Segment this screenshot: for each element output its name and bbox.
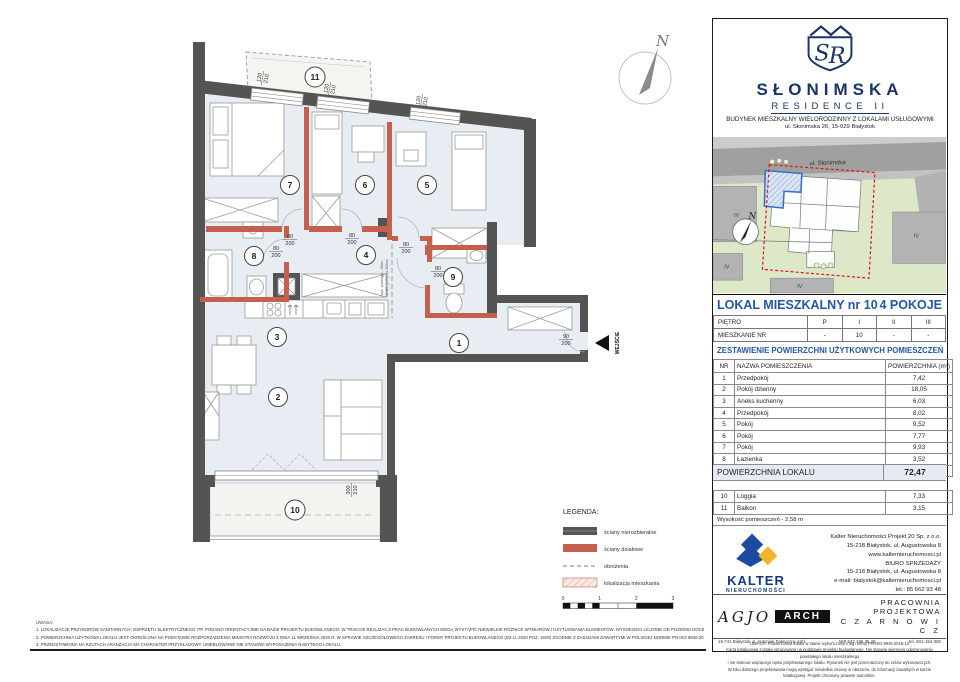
room-label-9: 9 [444,268,463,287]
info-panel: S R SŁONIMSKA RESIDENCE II BUDYNEK MIESZ… [712,18,948,652]
bed-double [210,103,284,176]
svg-text:80: 80 [287,234,293,240]
room-label-6: 6 [356,176,375,195]
svg-text:80: 80 [273,246,279,252]
svg-text:200: 200 [347,240,356,246]
washbasin-icon [467,248,486,263]
table-row: 6Pokój7,77 [714,430,953,442]
ceiling-height-note: Wysokość pomieszczeń - 2,58 m [713,514,946,526]
toilet-icon [444,284,464,313]
site-map: ul. Słonimska IV IV IV IV [713,136,946,295]
extra-table-body: 10Loggia7,3311Balkon3,15 [714,491,953,515]
svg-text:ściany nierozbieralne: ściany nierozbieralne [604,530,657,536]
svg-text:światło przejścia 200cm: światło przejścia 200cm [385,259,389,297]
svg-text:lokalizacja mieszkania: lokalizacja mieszkania [604,581,660,587]
floor-table: PIĘTRO PI IIIII MIESZKANIE NR -10 -- [713,315,946,342]
unit-title: LOKAL MIESZKALNY nr 10 [713,298,878,312]
svg-text:3: 3 [275,332,280,342]
svg-text:80: 80 [349,233,355,239]
floor-label: IV [797,284,803,290]
kitchen-counter [245,300,388,318]
developer-website-link[interactable]: www.kalternieruchomosci.pl [799,551,941,560]
svg-text:7: 7 [288,180,293,190]
svg-text:80: 80 [435,266,441,272]
brand-subname: RESIDENCE II [713,101,947,112]
svg-text:80: 80 [403,242,409,248]
svg-text:200: 200 [433,273,442,279]
room-label-5: 5 [418,176,437,195]
table-row: 4Przedpokój8,02 [714,407,953,419]
floor-label: IV [734,213,740,219]
svg-text:3: 3 [672,596,675,602]
svg-text:200: 200 [561,341,570,347]
svg-text:210: 210 [353,485,359,494]
unit-header: LOKAL MIESZKALNY nr 10 4 POKOJE [713,294,946,316]
agjo-logo: AGJO [718,608,771,626]
beam-note: wys. podciągu - 26cm światło przejścia 2… [380,259,389,297]
entrance-marker: WEJŚCIE [595,331,621,354]
developer-contact: Kalter Nieruchomości Projekt 20 Sp. z o.… [799,529,946,594]
svg-text:N: N [655,32,670,50]
svg-text:300: 300 [346,485,352,494]
table-row: 5Pokój9,52 [714,419,953,431]
table-row: 1Przedpokój7,42 [714,373,953,385]
brand-header: S R SŁONIMSKA RESIDENCE II BUDYNEK MIESZ… [713,19,947,130]
room-label-4: 4 [357,246,376,265]
developer-name: KALTER [713,573,799,588]
svg-text:N: N [748,212,758,222]
room-label-8: 8 [245,247,264,266]
note-item: 1. LOKALIZACJE PRZYBORÓW SANITARNYCH, OS… [36,626,704,633]
plan-legend: LEGENDA: ściany nierozbieralne ściany dz… [563,509,660,587]
room-label-2: 2 [269,388,288,407]
table-row: 10Loggia7,33 [714,491,953,503]
area-table-body: 1Przedpokój7,422Pokój dzienny18,053Aneks… [714,373,953,477]
svg-text:wys. podciągu - 26cm: wys. podciągu - 26cm [380,261,384,296]
table-header-row: NR NAZWA POMIESZCZENIA POWIERZCHNIA (m²) [714,360,953,373]
north-arrow-icon: N [619,32,671,104]
kalter-logo: KALTER NIERUCHOMOŚCI [713,529,799,594]
brand-name: SŁONIMSKA [713,80,947,100]
svg-text:WEJŚCIE: WEJŚCIE [614,331,621,354]
table-row: 7Pokój9,93 [714,442,953,454]
developer-block: KALTER NIERUCHOMOŚCI Kalter Nieruchomośc… [713,529,946,594]
table-row: 3Aneks kuchenny6,03 [714,396,953,408]
svg-text:11: 11 [311,72,320,82]
scale-bar: 0 1 2 3 [562,596,675,609]
bed-single [312,112,342,194]
svg-text:ściany działowe: ściany działowe [604,547,643,553]
room-label-7: 7 [281,176,300,195]
washbasin-icon [247,276,266,298]
svg-text:1: 1 [457,338,462,348]
studio-name: PRACOWNIA PROJEKTOWA C Z A R N O W I C Z [830,598,941,636]
svg-text:LEGENDA:: LEGENDA: [563,509,598,516]
building-address: ul. Słonimska 26, 15-029 Białystok [713,124,947,130]
svg-text:5: 5 [425,180,430,190]
sr-logo-icon: S R [798,23,862,73]
table-row: 11Balkon3,15 [714,503,953,515]
area-table-title: ZESTAWIENIE POWIERZCHNI UŻYTKOWYCH POMIE… [717,346,943,355]
svg-text:200: 200 [271,253,280,259]
sofa-icon [324,380,382,460]
unit-type: 4 POKOJE [879,298,946,312]
note-item: 3. PRZEDSTAWIONA NA RZUTACH ARANŻACJA MA… [36,641,704,648]
kalter-logo-icon [728,532,784,570]
area-table: NR NAZWA POMIESZCZENIA POWIERZCHNIA (m²)… [713,359,953,477]
plan-notes: UWAGA: 1. LOKALIZACJE PRZYBORÓW SANITARN… [36,619,704,648]
svg-text:1: 1 [598,596,601,602]
arch-badge: ARCH [775,610,830,623]
room-label-11: 11 [305,67,325,87]
total-area-label: POWIERZCHNIA LOKALU [713,468,815,477]
extra-area-table: 10Loggia7,3311Balkon3,15 [713,490,953,515]
disclaimer: UWAGA: Powierzchnia lokalu w stanie wyko… [713,638,946,682]
svg-text:R: R [828,43,846,69]
developer-email-link[interactable]: e-mail: bialystok@kalternieruchomosci.pl [799,577,941,586]
table-row: PIĘTRO PI IIIII [714,316,946,329]
studio-block: AGJO ARCH PRACOWNIA PROJEKTOWA C Z A R N… [713,594,946,639]
svg-text:200: 200 [285,241,294,247]
room-label-10: 10 [285,500,305,520]
svg-text:90: 90 [563,334,569,340]
apartment-card: { "header": { "monogram": "SR", "brand":… [0,0,960,678]
svg-text:0: 0 [562,596,565,602]
svg-text:obniżenia: obniżenia [604,564,629,570]
svg-text:2: 2 [635,596,638,602]
total-area-value: 72,47 [883,465,946,480]
tv-bench [203,392,219,440]
wardrobe-icon [312,196,340,230]
sheet-bottom-rule [30,649,706,651]
svg-text:4: 4 [364,250,369,260]
note-item: 2. POWIERZCHNIA UŻYTKOWA LOKALU JEST OKR… [36,634,704,641]
svg-text:10: 10 [290,505,300,515]
svg-text:9: 9 [451,272,456,282]
bed-single [452,132,486,210]
wardrobe-icon [508,307,572,330]
total-area-row: POWIERZCHNIA LOKALU 72,47 [713,464,946,481]
table-row: 2Pokój dzienny18,05 [714,384,953,396]
wardrobe-icon [302,274,386,297]
svg-text:S: S [814,41,829,67]
building-type: BUDYNEK MIESZKALNY WIELORODZINNY Z LOKAL… [713,116,947,123]
floor-plan: wys. podciągu - 26cm światło przejścia 2… [0,0,710,660]
svg-text:210: 210 [422,97,430,107]
room-label-1: 1 [450,334,469,353]
dining-table [212,336,256,394]
street-label: ul. Słonimska [809,159,846,167]
svg-text:200: 200 [401,249,410,255]
svg-text:6: 6 [363,180,368,190]
room-label-3: 3 [268,328,287,347]
floor-label: IV [724,264,730,270]
table-row: MIESZKANIE NR -10 -- [714,329,946,342]
desk-icon [396,132,426,166]
floor-label: IV [914,234,920,240]
notes-title: UWAGA: [36,619,704,626]
bathtub-icon [204,250,232,300]
wardrobe-icon [202,198,278,222]
svg-text:2: 2 [276,392,281,402]
svg-text:8: 8 [252,251,257,261]
